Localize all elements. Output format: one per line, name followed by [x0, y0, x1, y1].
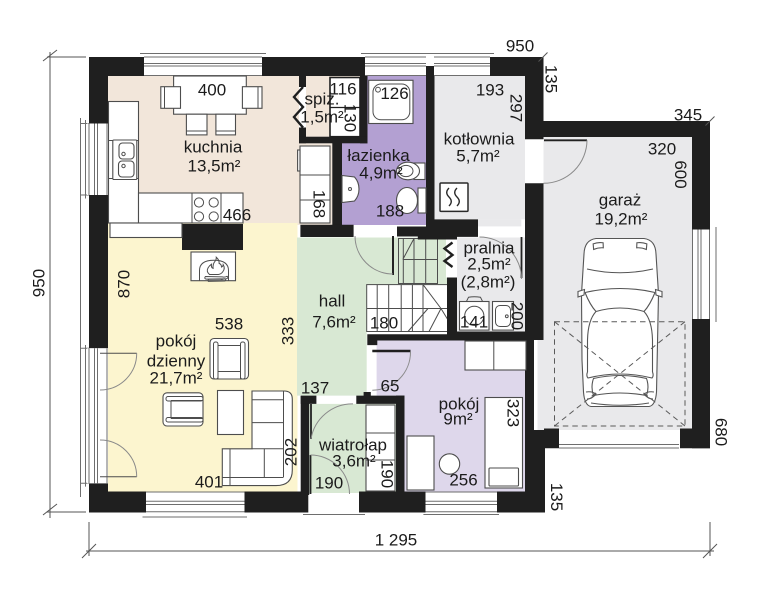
svg-text:19,2m²: 19,2m²: [595, 210, 648, 229]
svg-text:(2,8m²): (2,8m²): [461, 273, 516, 292]
svg-text:950: 950: [506, 37, 534, 56]
svg-text:320: 320: [648, 140, 676, 159]
svg-text:135: 135: [547, 483, 566, 511]
svg-text:193: 193: [476, 81, 504, 100]
svg-text:1 295: 1 295: [375, 531, 418, 550]
svg-text:466: 466: [223, 206, 251, 225]
svg-text:7,6m²: 7,6m²: [312, 313, 356, 332]
svg-text:garaż: garaż: [599, 191, 642, 210]
svg-text:168: 168: [310, 190, 329, 218]
svg-text:297: 297: [507, 94, 526, 122]
svg-text:126: 126: [380, 84, 408, 103]
svg-text:401: 401: [195, 473, 223, 492]
svg-text:202: 202: [282, 438, 301, 466]
svg-text:333: 333: [279, 317, 298, 345]
svg-text:680: 680: [712, 418, 731, 446]
svg-text:pokój: pokój: [156, 332, 197, 351]
svg-text:323: 323: [504, 399, 523, 427]
svg-text:hall: hall: [319, 292, 345, 311]
svg-text:130: 130: [341, 104, 360, 132]
svg-text:190: 190: [378, 460, 397, 488]
svg-text:950: 950: [30, 269, 49, 297]
svg-text:5,7m²: 5,7m²: [456, 147, 500, 166]
svg-text:200: 200: [508, 302, 527, 330]
svg-text:13,5m²: 13,5m²: [188, 157, 241, 176]
svg-text:4,9m²: 4,9m²: [359, 164, 403, 183]
svg-text:9m²: 9m²: [443, 410, 473, 429]
svg-text:kuchnia: kuchnia: [184, 138, 243, 157]
svg-text:870: 870: [115, 270, 134, 298]
svg-text:135: 135: [542, 65, 561, 93]
svg-text:256: 256: [449, 471, 477, 490]
svg-text:137: 137: [301, 379, 329, 398]
svg-text:188: 188: [376, 202, 404, 221]
svg-text:3,6m²: 3,6m²: [332, 452, 376, 471]
svg-text:190: 190: [315, 474, 343, 493]
svg-text:116: 116: [329, 80, 356, 99]
svg-text:180: 180: [370, 314, 398, 333]
svg-text:łazienka: łazienka: [347, 146, 410, 165]
svg-text:400: 400: [198, 81, 226, 100]
svg-text:2,5m²: 2,5m²: [467, 255, 511, 274]
svg-text:345: 345: [674, 106, 702, 125]
svg-text:21,7m²: 21,7m²: [150, 369, 203, 388]
svg-text:538: 538: [215, 315, 243, 334]
svg-text:600: 600: [671, 160, 690, 188]
svg-text:141: 141: [460, 313, 488, 332]
svg-text:1,5m²: 1,5m²: [300, 108, 344, 127]
svg-text:65: 65: [381, 377, 400, 396]
